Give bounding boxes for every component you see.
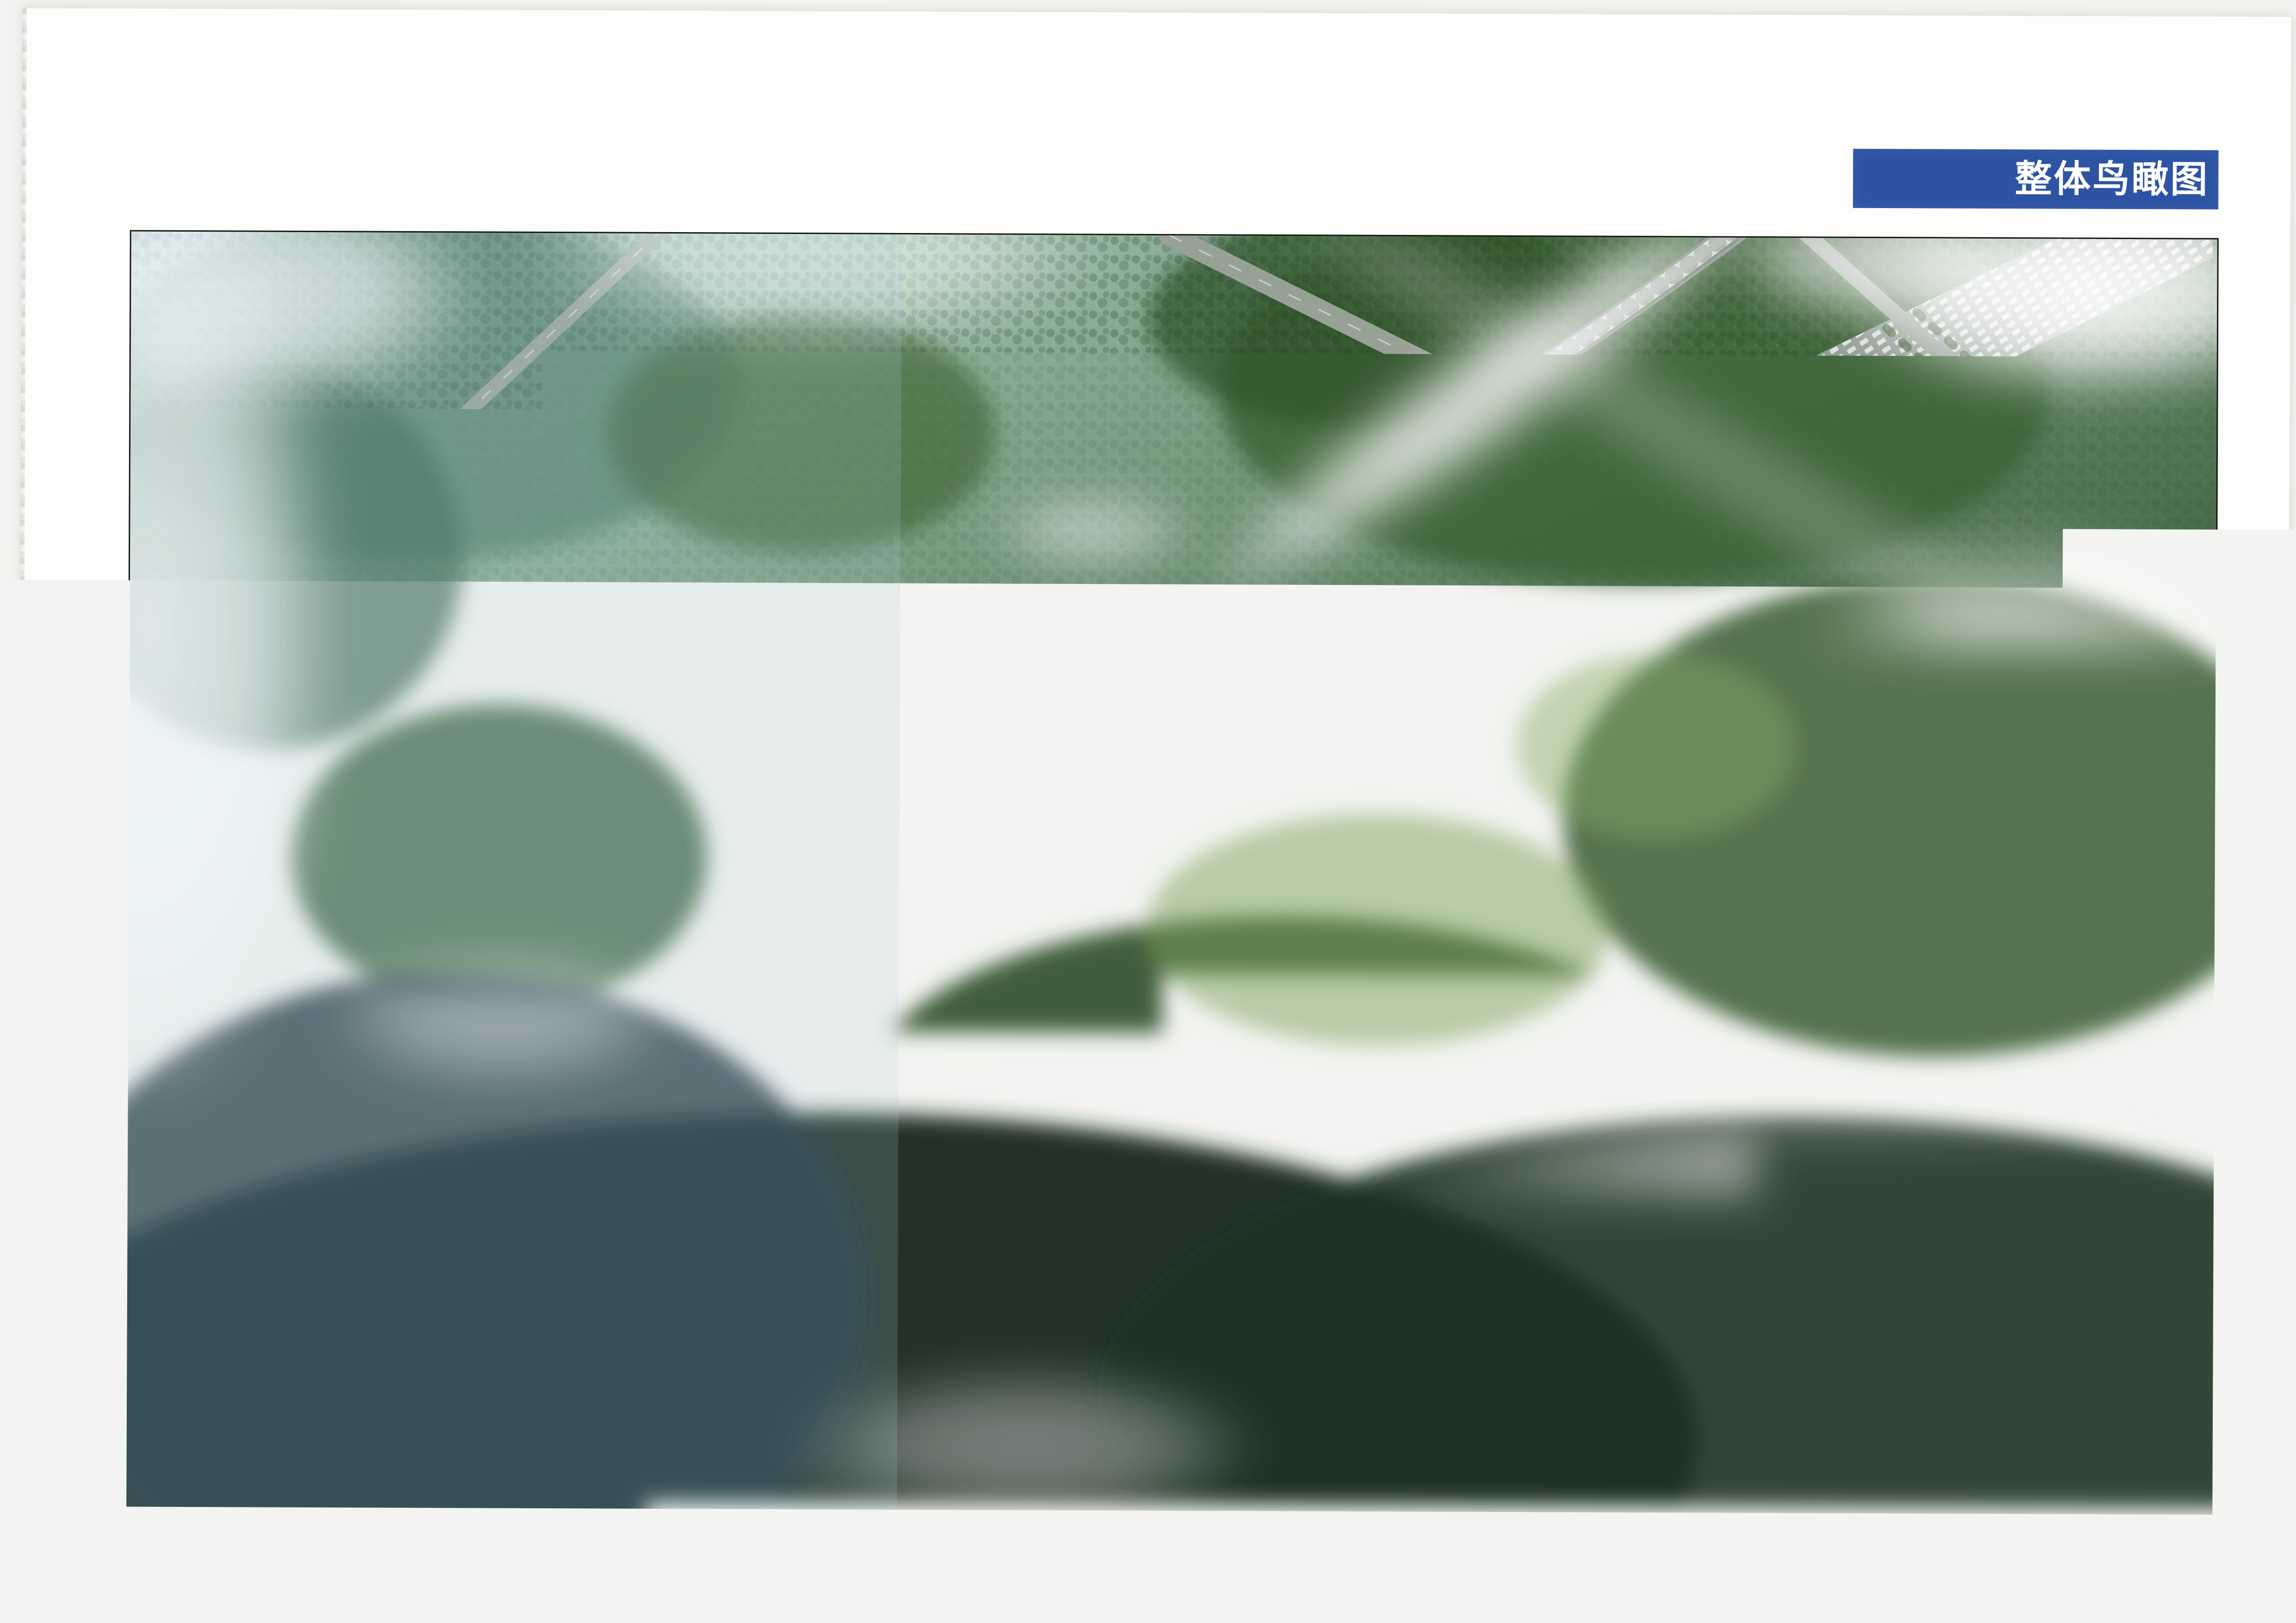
section-title-banner: 整体鸟瞰图 <box>1853 149 2218 209</box>
section-title: 整体鸟瞰图 <box>2015 149 2218 209</box>
scanned-page: 整体鸟瞰图 <box>18 8 2291 1618</box>
footer-caption: 芜湖市城东6号地块规划设计方案 <box>1666 1551 2190 1585</box>
aerial-photo <box>125 230 2219 1516</box>
aerial-scene <box>126 231 2217 1514</box>
footer-rule <box>167 1537 2199 1549</box>
tone-overlays <box>126 231 871 1514</box>
torn-paper-edge <box>16 8 26 1609</box>
